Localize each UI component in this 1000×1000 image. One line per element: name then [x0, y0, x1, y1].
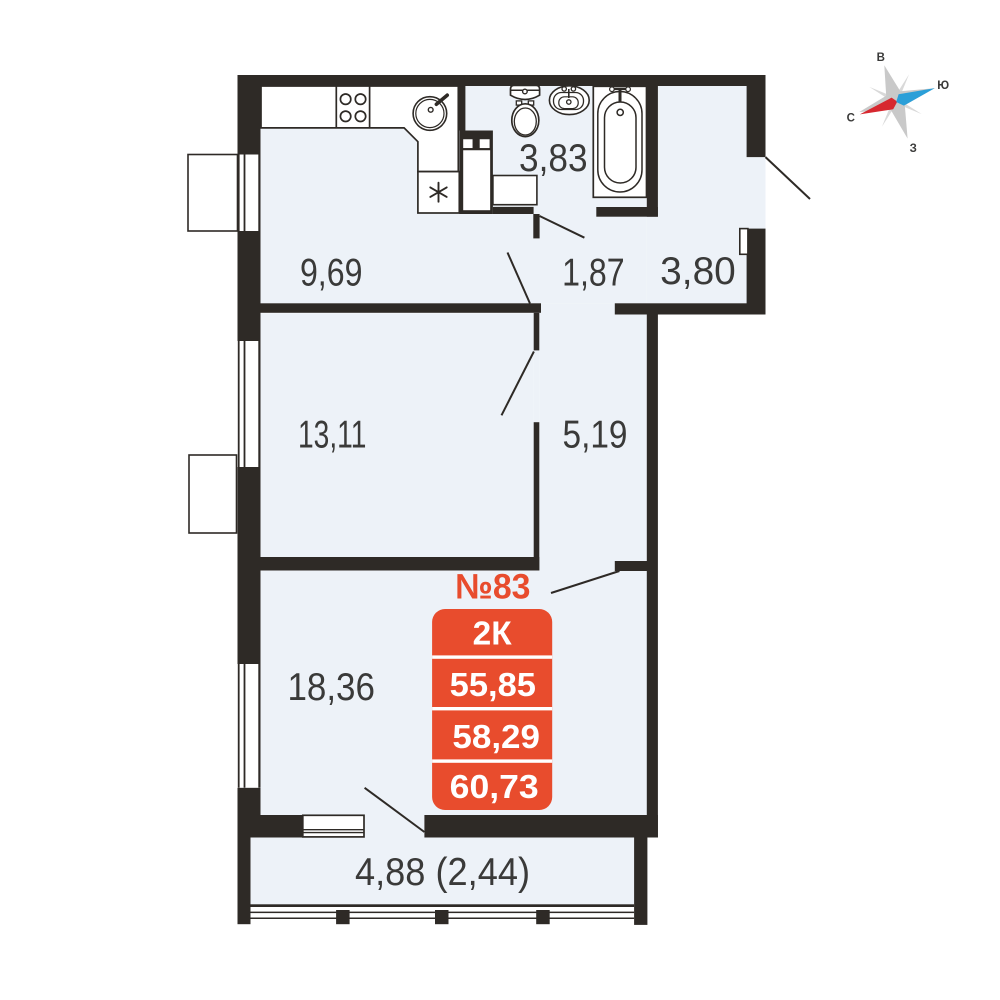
svg-text:Ю: Ю — [937, 80, 949, 92]
svg-text:18,36: 18,36 — [287, 666, 375, 709]
svg-text:5,19: 5,19 — [563, 413, 628, 456]
svg-text:9,69: 9,69 — [300, 252, 363, 295]
svg-text:С: С — [847, 113, 855, 125]
svg-text:3,80: 3,80 — [660, 250, 736, 293]
svg-text:60,73: 60,73 — [450, 768, 539, 805]
svg-text:В: В — [877, 52, 885, 64]
svg-text:№83: №83 — [455, 567, 530, 607]
svg-text:13,11: 13,11 — [298, 413, 366, 456]
svg-text:2К: 2К — [473, 615, 513, 652]
svg-text:55,85: 55,85 — [450, 666, 536, 703]
svg-text:3,83: 3,83 — [519, 137, 588, 180]
svg-text:1,87: 1,87 — [562, 252, 625, 295]
svg-text:З: З — [910, 143, 917, 155]
svg-text:4,88 (2,44): 4,88 (2,44) — [355, 851, 530, 894]
svg-text:58,29: 58,29 — [452, 718, 540, 755]
